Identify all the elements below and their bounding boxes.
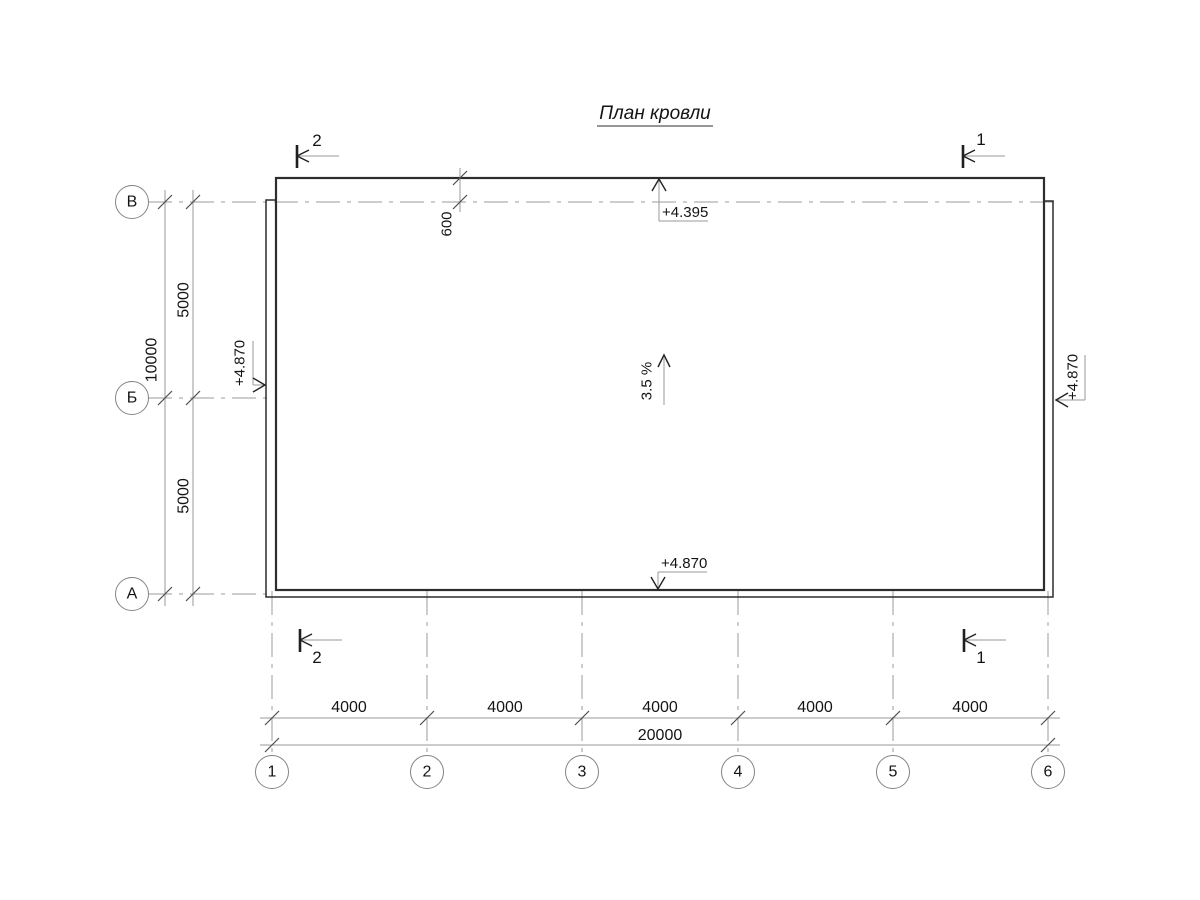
axis-label-row-a: А [127, 586, 138, 603]
slope-label: 3.5 % [639, 362, 656, 400]
section-label-bottom-right: 1 [976, 648, 985, 667]
row-axis-markers: В Б А [116, 186, 149, 611]
section-label-bottom-left: 2 [312, 648, 321, 667]
section-mark-top-left: 2 [297, 131, 339, 168]
elevation-mark-bottom: +4.870 [651, 555, 707, 589]
axis-label-col-2: 2 [423, 764, 432, 781]
elevation-label-top: +4.395 [662, 204, 708, 221]
wall-outline [266, 200, 1053, 597]
dim-label-4000-4: 4000 [797, 699, 833, 716]
dim-label-20000-total: 20000 [638, 727, 683, 744]
axis-label-row-b: Б [127, 390, 138, 407]
section-label-top-left: 2 [312, 131, 321, 150]
elevation-mark-left: +4.870 [232, 340, 266, 392]
roof-plan-drawing: План кровли В Б А 1 2 3 4 5 6 [0, 0, 1200, 900]
elevation-label-right: +4.870 [1065, 354, 1082, 400]
dim-label-600: 600 [439, 211, 456, 236]
elevation-label-bottom: +4.870 [661, 555, 707, 572]
drawing-canvas: План кровли В Б А 1 2 3 4 5 6 [0, 0, 1200, 900]
section-mark-bottom-left: 2 [300, 629, 342, 667]
axis-label-row-v: В [127, 194, 138, 211]
axis-label-col-3: 3 [578, 764, 587, 781]
dim-label-5000-lower: 5000 [176, 478, 193, 514]
axis-label-col-4: 4 [734, 764, 743, 781]
section-label-top-right: 1 [976, 130, 985, 149]
elevation-label-left: +4.870 [232, 340, 249, 386]
axis-label-col-5: 5 [889, 764, 898, 781]
dim-label-4000-2: 4000 [487, 699, 523, 716]
elevation-mark-top: +4.395 [652, 179, 708, 221]
section-mark-top-right: 1 [963, 130, 1005, 168]
axis-lines [148, 202, 1058, 755]
drawing-title: План кровли [599, 103, 711, 124]
axis-label-col-1: 1 [268, 764, 277, 781]
dim-label-5000-upper: 5000 [176, 282, 193, 318]
roof-outline [276, 178, 1044, 590]
dim-label-10000-total: 10000 [144, 338, 161, 383]
dim-label-4000-5: 4000 [952, 699, 988, 716]
elevation-mark-right: +4.870 [1056, 354, 1085, 407]
col-axis-markers: 1 2 3 4 5 6 [256, 756, 1065, 789]
dim-label-4000-1: 4000 [331, 699, 367, 716]
slope-indicator: 3.5 % [639, 355, 671, 405]
axis-label-col-6: 6 [1044, 764, 1053, 781]
horizontal-dimension-lines: 4000 4000 4000 4000 4000 20000 [260, 699, 1060, 752]
section-mark-bottom-right: 1 [964, 629, 1006, 667]
dim-label-4000-3: 4000 [642, 699, 678, 716]
